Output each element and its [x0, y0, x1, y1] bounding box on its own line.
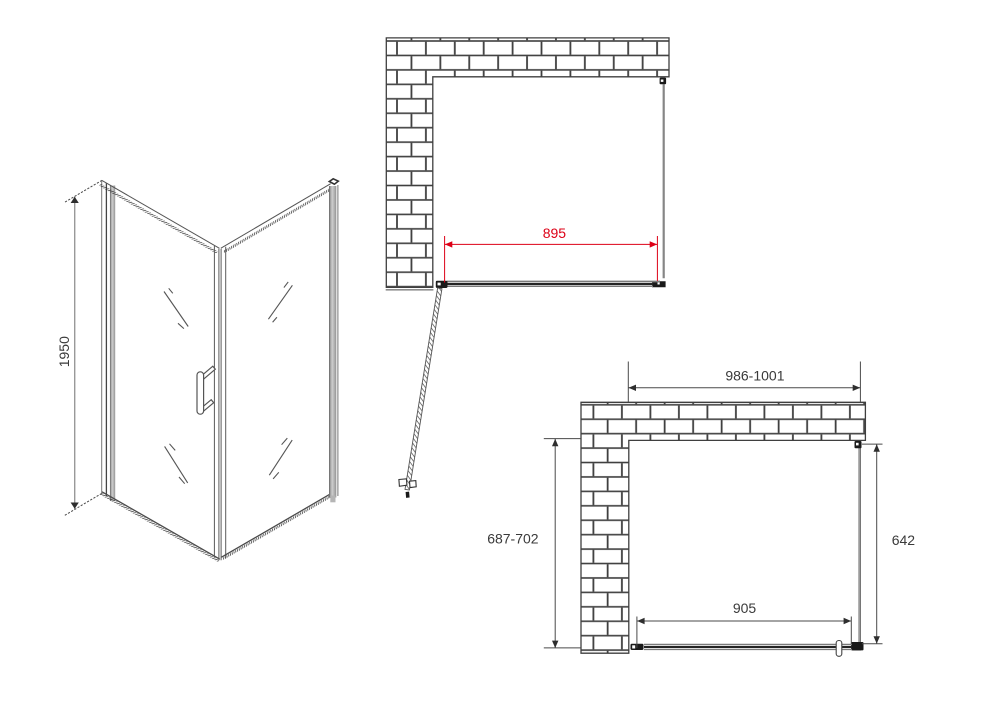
svg-text:905: 905: [733, 600, 757, 616]
svg-text:687-702: 687-702: [487, 531, 539, 547]
svg-text:986-1001: 986-1001: [725, 368, 784, 384]
svg-text:642: 642: [892, 532, 916, 548]
svg-text:895: 895: [543, 225, 567, 241]
svg-text:1950: 1950: [56, 336, 72, 367]
